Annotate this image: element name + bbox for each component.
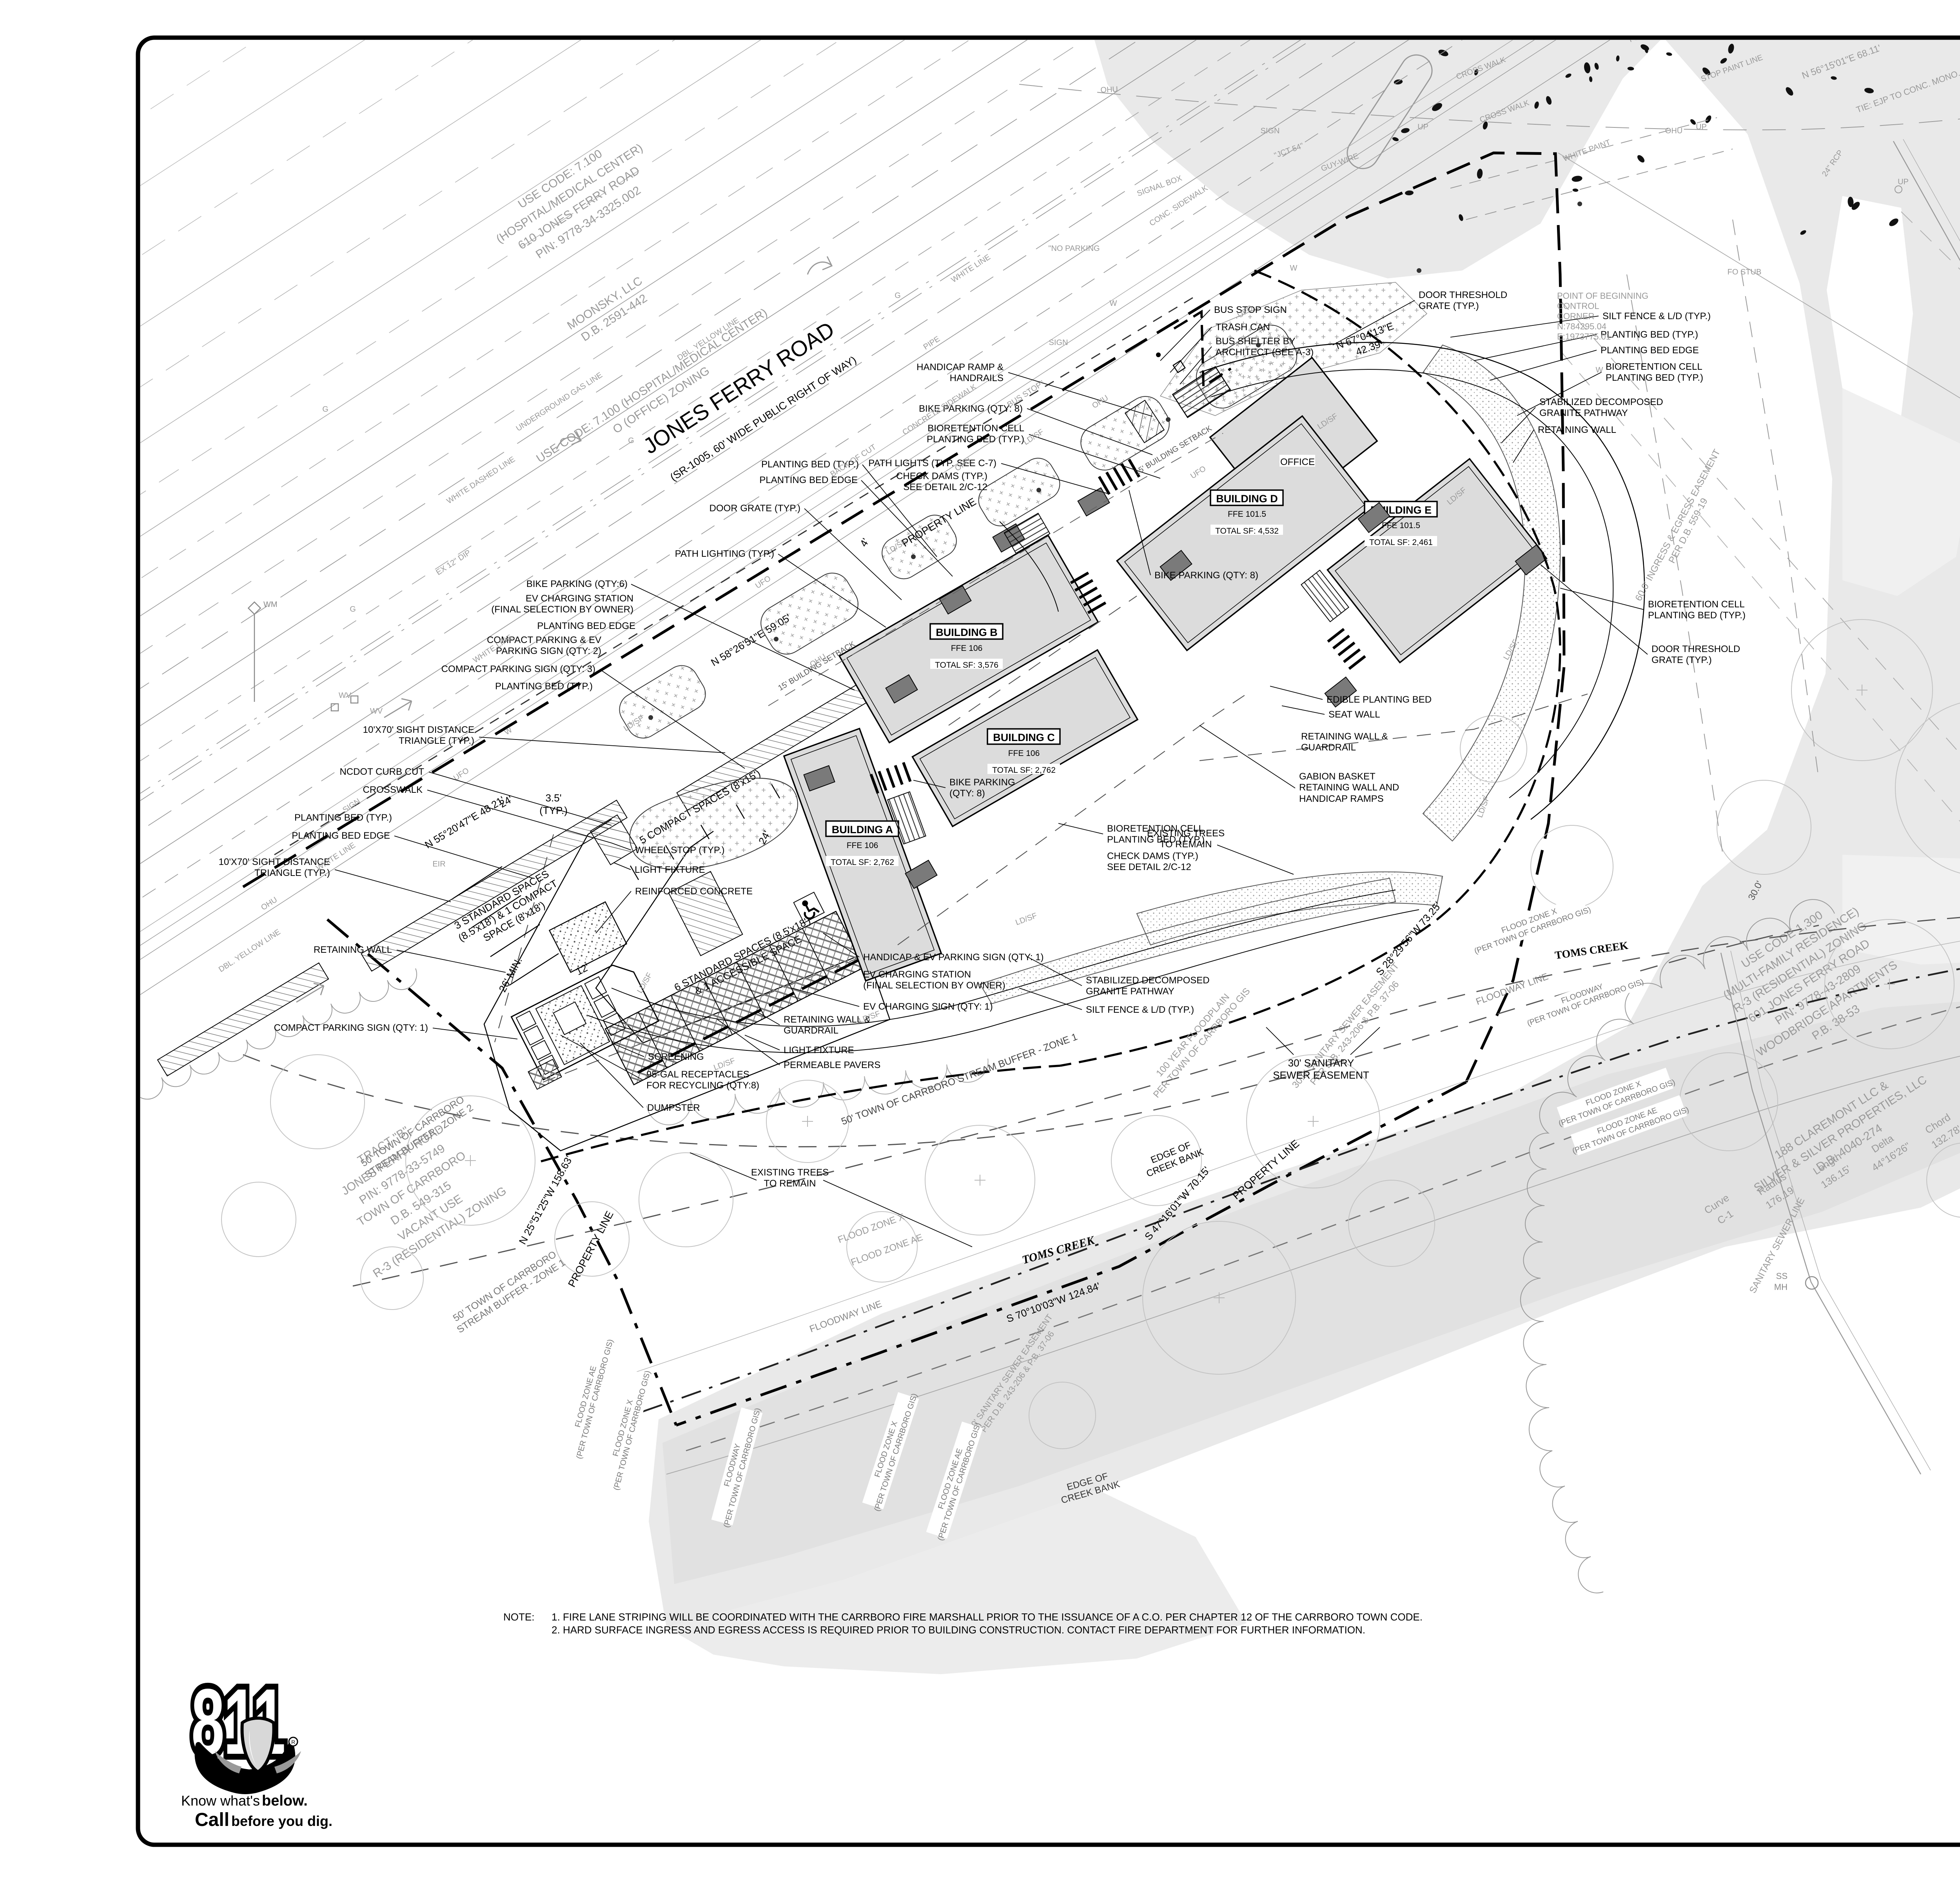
svg-text:W: W [1110, 299, 1117, 308]
svg-text:WHEEL STOP (TYP.): WHEEL STOP (TYP.) [635, 845, 725, 856]
svg-text:PERMEABLE PAVERS: PERMEABLE PAVERS [784, 1060, 880, 1070]
svg-text:CHECK DAMS (TYP.): CHECK DAMS (TYP.) [1107, 851, 1198, 861]
svg-text:PLANTING BED (TYP.): PLANTING BED (TYP.) [1606, 372, 1703, 383]
svg-text:WV: WV [370, 707, 383, 716]
svg-text:W: W [1596, 366, 1603, 374]
svg-text:TOTAL SF: 3,576: TOTAL SF: 3,576 [935, 661, 998, 670]
svg-text:RETAINING WALL &: RETAINING WALL & [1301, 731, 1388, 742]
svg-text:N:784295.04: N:784295.04 [1557, 322, 1606, 331]
svg-text:TOTAL SF: 2,461: TOTAL SF: 2,461 [1369, 538, 1433, 547]
svg-text:OHU: OHU [1100, 85, 1118, 94]
svg-text:NCDOT CURB CUT: NCDOT CURB CUT [339, 767, 424, 777]
svg-text:PLANTING BED (TYP.): PLANTING BED (TYP.) [927, 434, 1024, 445]
svg-text:EXISTING TREES: EXISTING TREES [751, 1167, 829, 1178]
svg-text:TRIANGLE (TYP.): TRIANGLE (TYP.) [399, 736, 474, 746]
svg-text:PLANTING BED (TYP.): PLANTING BED (TYP.) [1601, 329, 1698, 340]
svg-text:FFE 101.5: FFE 101.5 [1228, 510, 1266, 519]
svg-text:TOTAL SF: 2,762: TOTAL SF: 2,762 [831, 858, 894, 867]
svg-text:SILT FENCE & L/D (TYP.): SILT FENCE & L/D (TYP.) [1602, 311, 1711, 322]
svg-text:SEE DETAIL 2/C-12: SEE DETAIL 2/C-12 [903, 482, 987, 492]
svg-text:EV CHARGING STATION: EV CHARGING STATION [526, 593, 633, 604]
svg-text:MH: MH [1774, 1282, 1788, 1292]
svg-text:BIORETENTION CELL: BIORETENTION CELL [1648, 599, 1745, 610]
svg-text:FFE 106: FFE 106 [847, 841, 878, 850]
svg-text:OFFICE: OFFICE [1280, 457, 1315, 467]
svg-text:R: R [291, 1739, 295, 1745]
svg-text:EV CHARGING SIGN (QTY: 1): EV CHARGING SIGN (QTY: 1) [863, 1001, 993, 1012]
svg-text:SIGN: SIGN [1261, 127, 1280, 135]
svg-text:TOTAL SF: 2,762: TOTAL SF: 2,762 [992, 766, 1056, 775]
svg-text:TO REMAIN: TO REMAIN [1160, 839, 1212, 850]
svg-text:GRATE (TYP.): GRATE (TYP.) [1419, 301, 1479, 311]
svg-text:30' SANITARY: 30' SANITARY [1288, 1057, 1354, 1069]
svg-text:COMPACT PARKING SIGN (QTY: 3): COMPACT PARKING SIGN (QTY: 3) [441, 664, 595, 674]
svg-text:NOTE:: NOTE: [503, 1611, 534, 1623]
svg-text:PLANTING BED (TYP.): PLANTING BED (TYP.) [495, 681, 593, 692]
svg-text:FFE 106: FFE 106 [951, 644, 983, 653]
svg-text:Know what's: Know what's [181, 1793, 260, 1809]
svg-text:PARKING SIGN (QTY: 2): PARKING SIGN (QTY: 2) [496, 646, 601, 656]
svg-text:PLANTING BED EDGE: PLANTING BED EDGE [537, 621, 635, 631]
svg-text:10'X70' SIGHT DISTANCE: 10'X70' SIGHT DISTANCE [363, 725, 474, 735]
svg-text:G: G [895, 291, 901, 300]
svg-text:PATH LIGHTING (TYP.): PATH LIGHTING (TYP.) [675, 549, 774, 559]
svg-text:2. HARD SURFACE INGRESS AND EG: 2. HARD SURFACE INGRESS AND EGRESS ACCES… [552, 1624, 1365, 1636]
svg-text:BUS SHELTER BY: BUS SHELTER BY [1216, 336, 1296, 347]
svg-text:PLANTING BED (TYP.): PLANTING BED (TYP.) [1648, 610, 1746, 621]
svg-text:G: G [322, 405, 328, 414]
svg-text:EDIBLE PLANTING BED: EDIBLE PLANTING BED [1327, 694, 1432, 705]
svg-text:SILT FENCE & L/D (TYP.): SILT FENCE & L/D (TYP.) [1086, 1005, 1194, 1015]
svg-text:TO REMAIN: TO REMAIN [764, 1178, 816, 1189]
svg-text:BUILDING D: BUILDING D [1216, 493, 1278, 505]
svg-text:GUARDRAIL: GUARDRAIL [784, 1025, 838, 1036]
svg-text:GRANITE PATHWAY: GRANITE PATHWAY [1086, 986, 1174, 997]
svg-text:LIGHT FIXTURE: LIGHT FIXTURE [635, 865, 705, 875]
svg-text:RETAINING WALL: RETAINING WALL [1538, 425, 1616, 435]
svg-text:UP: UP [1417, 123, 1428, 131]
svg-text:WM: WM [263, 600, 278, 609]
svg-text:HANDICAP & EV PARKING SIGN (QT: HANDICAP & EV PARKING SIGN (QTY: 1) [863, 952, 1044, 963]
svg-text:BIKE PARKING: BIKE PARKING [949, 777, 1015, 788]
svg-text:SIGN: SIGN [1049, 338, 1068, 347]
svg-text:BIORETENTION CELL: BIORETENTION CELL [1606, 362, 1702, 372]
svg-text:HANDICAP RAMP &: HANDICAP RAMP & [916, 362, 1004, 372]
svg-text:FFE 101.5: FFE 101.5 [1382, 521, 1420, 530]
svg-text:STABILIZED DECOMPOSED: STABILIZED DECOMPOSED [1539, 397, 1663, 407]
svg-text:HANDRAILS: HANDRAILS [950, 373, 1004, 383]
svg-text:(TYP.): (TYP.) [539, 805, 568, 816]
svg-text:W: W [1290, 264, 1298, 272]
svg-text:below.: below. [262, 1793, 308, 1809]
svg-text:STABILIZED DECOMPOSED: STABILIZED DECOMPOSED [1086, 975, 1210, 986]
svg-text:PLANTING BED EDGE: PLANTING BED EDGE [759, 475, 858, 485]
svg-text:GABION BASKET: GABION BASKET [1299, 771, 1376, 782]
svg-text:UP: UP [1696, 123, 1707, 131]
svg-text:UP: UP [1898, 178, 1909, 186]
svg-text:BUILDING A: BUILDING A [832, 824, 893, 836]
svg-text:FO STUB: FO STUB [1728, 268, 1762, 276]
svg-text:GRATE (TYP.): GRATE (TYP.) [1651, 655, 1712, 665]
svg-text:PLANTING BED (TYP.): PLANTING BED (TYP.) [294, 812, 392, 823]
svg-text:PLANTING BED EDGE: PLANTING BED EDGE [1601, 345, 1699, 356]
svg-text:G: G [628, 436, 634, 445]
svg-text:TRASH CAN: TRASH CAN [1216, 322, 1270, 332]
svg-text:ARCHITECT (SEE A-3): ARCHITECT (SEE A-3) [1216, 347, 1314, 358]
svg-text:PLANTING BED EDGE: PLANTING BED EDGE [292, 830, 390, 841]
svg-text:GRANITE PATHWAY: GRANITE PATHWAY [1539, 408, 1628, 418]
svg-text:95-GAL RECEPTACLES: 95-GAL RECEPTACLES [646, 1069, 750, 1080]
svg-text:EV CHARGING STATION: EV CHARGING STATION [863, 969, 971, 980]
svg-text:HANDICAP RAMPS: HANDICAP RAMPS [1299, 794, 1384, 804]
svg-text:DOOR THRESHOLD: DOOR THRESHOLD [1419, 290, 1507, 300]
svg-text:TOTAL SF: 4,532: TOTAL SF: 4,532 [1215, 527, 1279, 536]
svg-text:1. FIRE LANE STRIPING WILL BE: 1. FIRE LANE STRIPING WILL BE COORDINATE… [552, 1611, 1423, 1623]
svg-text:FFE 106: FFE 106 [1008, 749, 1040, 758]
svg-text:BIKE PARKING (QTY: 8): BIKE PARKING (QTY: 8) [1154, 570, 1258, 581]
svg-text:CROSSWALK: CROSSWALK [363, 785, 423, 795]
svg-text:SCREENING: SCREENING [648, 1052, 704, 1062]
svg-text:PATH LIGHTS (TYP. SEE C-7): PATH LIGHTS (TYP. SEE C-7) [868, 458, 996, 469]
svg-text:DUMPSTER: DUMPSTER [647, 1103, 700, 1113]
svg-text:SEAT WALL: SEAT WALL [1328, 709, 1380, 720]
svg-text:CONTROL: CONTROL [1557, 301, 1599, 311]
svg-text:GUARDRAIL: GUARDRAIL [1301, 742, 1356, 753]
svg-text:G: G [350, 605, 356, 614]
svg-text:E:1973775.01: E:1973775.01 [1557, 332, 1611, 342]
svg-text:SEE DETAIL 2/C-12: SEE DETAIL 2/C-12 [1107, 862, 1191, 872]
svg-text:3.5': 3.5' [545, 792, 561, 804]
svg-text:BUILDING B: BUILDING B [936, 627, 998, 638]
svg-text:SS: SS [1776, 1271, 1788, 1281]
svg-text:POINT OF BEGINNING: POINT OF BEGINNING [1557, 291, 1648, 301]
svg-text:10'X70' SIGHT DISTANCE: 10'X70' SIGHT DISTANCE [219, 857, 330, 867]
svg-text:CHECK DAMS (TYP.): CHECK DAMS (TYP.) [896, 471, 987, 481]
svg-text:DOOR GRATE (TYP.): DOOR GRATE (TYP.) [710, 503, 800, 514]
svg-text:BIKE PARKING (QTY:6): BIKE PARKING (QTY:6) [526, 579, 628, 589]
svg-text:RETAINING WALL &: RETAINING WALL & [784, 1014, 871, 1025]
svg-text:REINFORCED CONCRETE: REINFORCED CONCRETE [635, 886, 753, 897]
svg-text:BUILDING C: BUILDING C [993, 732, 1055, 743]
svg-text:SEWER EASEMENT: SEWER EASEMENT [1273, 1069, 1369, 1081]
svg-text:BIORETENTION CELL: BIORETENTION CELL [927, 423, 1024, 434]
svg-text:before you dig.: before you dig. [231, 1813, 332, 1829]
svg-text:RETAINING WALL: RETAINING WALL [314, 945, 392, 955]
svg-text:CORNER: CORNER [1557, 311, 1594, 321]
svg-text:WV: WV [339, 691, 352, 700]
svg-text:(QTY: 8): (QTY: 8) [949, 788, 985, 799]
svg-text:"NO PARKING: "NO PARKING [1048, 244, 1100, 253]
svg-text:COMPACT PARKING SIGN (QTY: 1): COMPACT PARKING SIGN (QTY: 1) [274, 1023, 428, 1033]
svg-text:EXISTING TREES: EXISTING TREES [1147, 828, 1225, 839]
svg-text:(FINAL SELECTION BY OWNER): (FINAL SELECTION BY OWNER) [491, 604, 633, 615]
svg-text:LIGHT FIXTURE: LIGHT FIXTURE [784, 1045, 854, 1055]
svg-text:RETAINING WALL AND: RETAINING WALL AND [1299, 782, 1399, 793]
svg-text:DOOR THRESHOLD: DOOR THRESHOLD [1651, 644, 1740, 654]
svg-text:(FINAL SELECTION BY OWNER): (FINAL SELECTION BY OWNER) [863, 980, 1005, 991]
svg-text:FOR RECYCLING (QTY:8): FOR RECYCLING (QTY:8) [646, 1080, 759, 1091]
svg-text:Call: Call [195, 1809, 229, 1830]
svg-text:EIR: EIR [432, 860, 445, 868]
